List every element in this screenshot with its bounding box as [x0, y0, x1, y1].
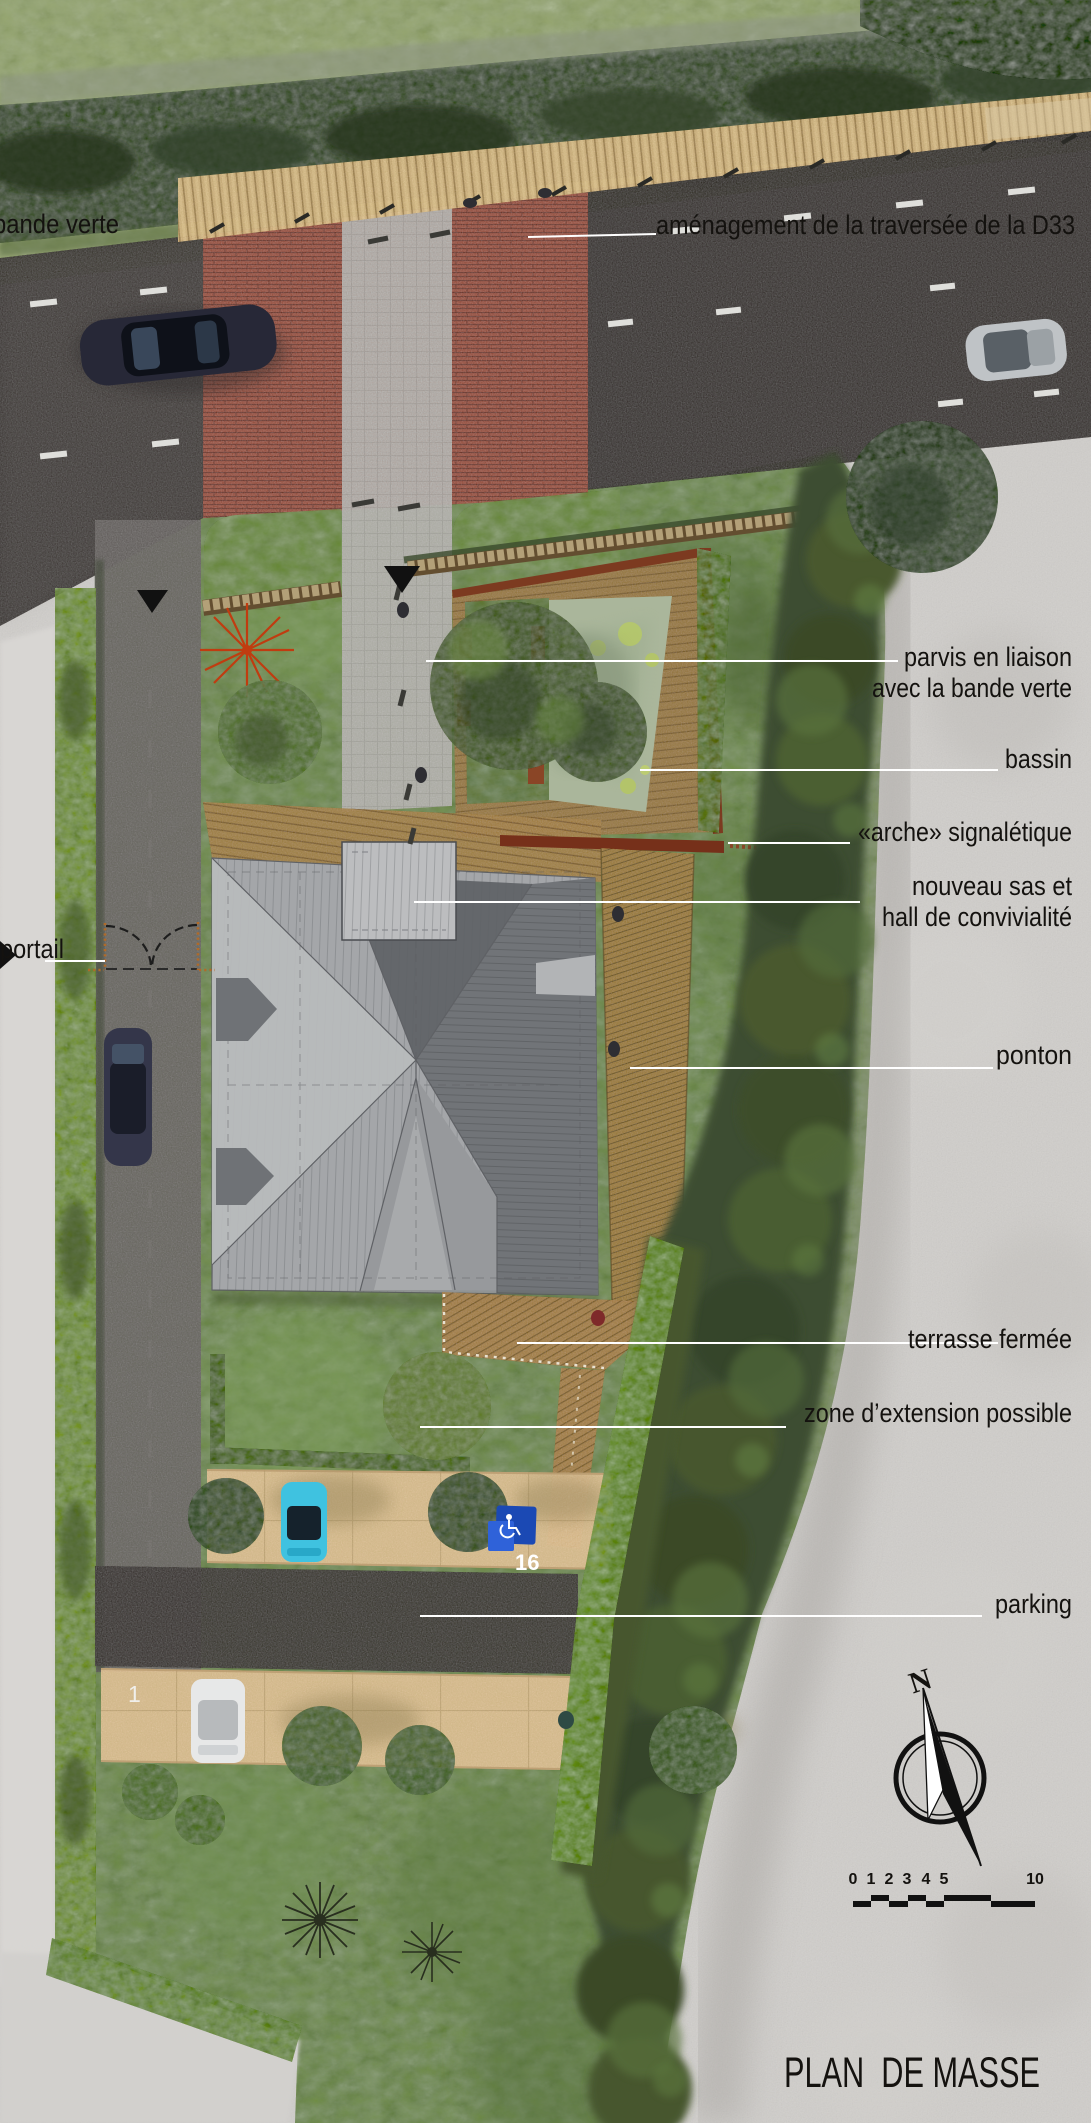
svg-text:0: 0 — [849, 1871, 858, 1888]
svg-text:PLAN DE MASSE: PLAN DE MASSE — [784, 2049, 1040, 2097]
svg-text:«arche» signalétique: «arche» signalétique — [858, 817, 1072, 847]
svg-text:aménagement de la traversée de: aménagement de la traversée de la D33 — [656, 210, 1075, 240]
svg-text:bassin: bassin — [1005, 744, 1072, 774]
svg-text:16: 16 — [515, 1550, 539, 1575]
svg-text:bande verte: bande verte — [0, 209, 119, 239]
svg-text:hall de convivialité: hall de convivialité — [882, 902, 1072, 932]
svg-text:nouveau sas et: nouveau sas et — [912, 871, 1072, 901]
svg-text:10: 10 — [1026, 1871, 1044, 1888]
svg-text:parking: parking — [995, 1589, 1072, 1619]
svg-text:1: 1 — [867, 1871, 876, 1888]
svg-text:3: 3 — [903, 1871, 912, 1888]
svg-text:parvis en liaison: parvis en liaison — [904, 642, 1072, 672]
svg-text:4: 4 — [922, 1871, 931, 1888]
svg-text:zone d’extension possible: zone d’extension possible — [804, 1398, 1072, 1428]
svg-text:2: 2 — [885, 1871, 894, 1888]
svg-text:terrasse fermée: terrasse fermée — [908, 1324, 1072, 1354]
svg-text:avec la bande verte: avec la bande verte — [872, 673, 1072, 703]
svg-text:1: 1 — [128, 1681, 141, 1707]
svg-text:5: 5 — [940, 1871, 949, 1888]
svg-text:ponton: ponton — [996, 1040, 1072, 1070]
svg-text:portail: portail — [0, 934, 64, 964]
